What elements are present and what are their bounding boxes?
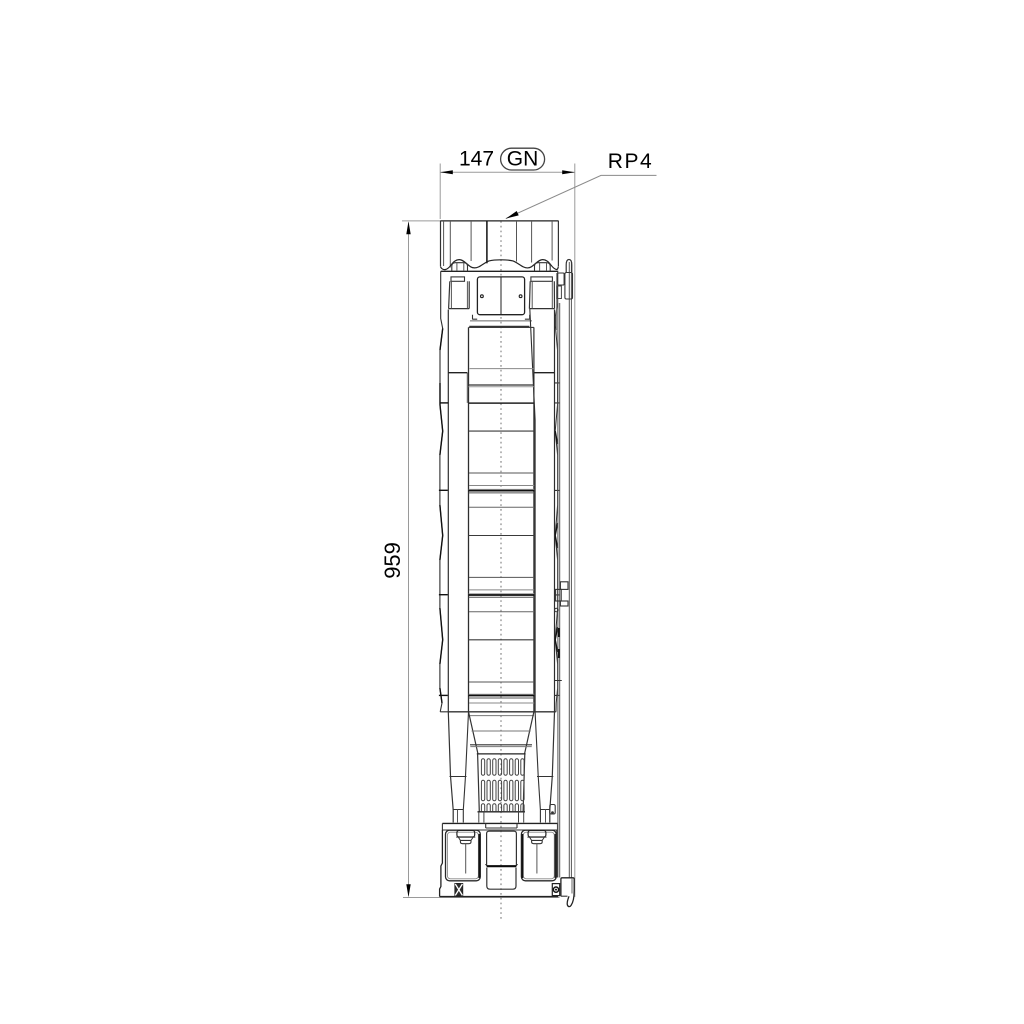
- svg-text:959: 959: [380, 542, 405, 579]
- svg-text:GN: GN: [507, 148, 539, 171]
- svg-text:RP4: RP4: [608, 150, 653, 173]
- svg-text:147: 147: [459, 148, 494, 171]
